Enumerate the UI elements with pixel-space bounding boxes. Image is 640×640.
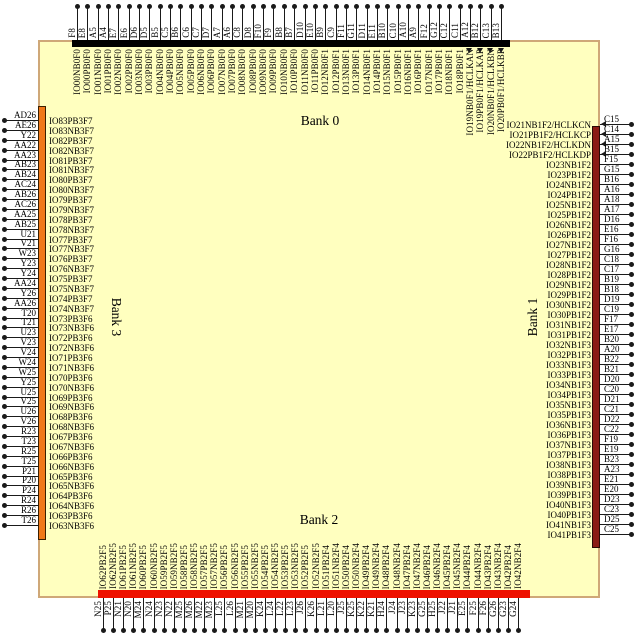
- pin-name: P24: [4, 485, 36, 495]
- pin-io-label: IO39PB1F3: [547, 490, 591, 500]
- pin-io-label: IO61NB2F5: [128, 543, 138, 589]
- pin-io-label: IO81PB3F7: [49, 156, 93, 166]
- pin-dot: [233, 628, 238, 633]
- pin-name: K24: [255, 601, 265, 617]
- pin-io-label: IO35PB1F3: [547, 410, 591, 420]
- pin-dot: [209, 4, 214, 9]
- pin-dot: [445, 628, 450, 633]
- pin-dot: [222, 628, 227, 633]
- pin-io-label: IO26PB1F2: [547, 230, 591, 240]
- pin-dot: [384, 628, 389, 633]
- pin-name: AA22: [4, 140, 36, 150]
- pin-name: F19: [604, 434, 636, 444]
- pin-dot: [427, 4, 432, 9]
- pin-name: M23: [204, 601, 214, 618]
- pin-io-label: IO34NB1F3: [546, 380, 591, 390]
- pin-io-label: IO34PB1F3: [547, 390, 591, 400]
- pin-dot: [489, 4, 494, 9]
- pin-io-label: IO23PB1F2: [547, 170, 591, 180]
- pin-name: G15: [604, 164, 636, 174]
- pin-io-label: IO38NB1F3: [546, 460, 591, 470]
- pin-name: T25: [4, 456, 36, 466]
- pin-name: A4: [98, 27, 108, 38]
- bank2-bottom-bar: [98, 590, 530, 598]
- pin-name: D16: [604, 214, 636, 224]
- pin-io-label: IO00NB0F0: [72, 49, 82, 95]
- pin-name: B16: [604, 174, 636, 184]
- pin-name: B9: [315, 27, 325, 38]
- pin-dot: [476, 628, 481, 633]
- pin-io-label: IO50NB2F4: [351, 543, 361, 589]
- pin-io-label: IO69PB3F6: [49, 393, 93, 403]
- pin-name: C20: [604, 384, 636, 394]
- pin-name: B18: [604, 284, 636, 294]
- pin-io-label: IO07PB0F0: [227, 49, 237, 93]
- pin-name: C17: [604, 264, 636, 274]
- pin-dot: [111, 628, 116, 633]
- pin-io-label: IO57PB2F5: [199, 545, 209, 589]
- pin-name: J22: [437, 601, 447, 614]
- pin-name: E17: [604, 324, 636, 334]
- pin-name: T26: [4, 515, 36, 525]
- pin-dot: [137, 4, 142, 9]
- pin-name: Y25: [4, 377, 36, 387]
- pin-name: K25: [346, 601, 356, 617]
- pin-io-label: IO80PB3F7: [49, 175, 93, 185]
- pin-name: K21: [366, 601, 376, 617]
- pin-io-label: IO39NB1F3: [546, 480, 591, 490]
- pin-name: D23: [604, 494, 636, 504]
- pin-name: B20: [604, 334, 636, 344]
- pin-io-label: IO29PB1F2: [547, 290, 591, 300]
- pin-name: B22: [604, 354, 636, 364]
- pin-io-label: IO81NB3F7: [49, 165, 94, 175]
- pin-io-label: IO83PB3F7: [49, 116, 93, 126]
- pin-name: F8: [67, 28, 77, 38]
- pin-name: U25: [4, 387, 36, 397]
- pin-name: J25: [336, 601, 346, 614]
- clock-arrow-icon: [487, 48, 493, 53]
- pin-io-label: IO32PB1F3: [547, 350, 591, 360]
- pin-name: U26: [4, 406, 36, 416]
- pin-name: F25: [468, 601, 478, 615]
- pin-name: A6: [222, 27, 232, 38]
- pin-io-label: IO12PB0F1: [331, 49, 341, 93]
- pin-name: R26: [4, 505, 36, 515]
- pin-name: AB24: [4, 169, 36, 179]
- pin-name: B7: [284, 27, 294, 38]
- pin-io-label: IO78PB3F7: [49, 215, 93, 225]
- pin-dot: [334, 628, 339, 633]
- pin-name: N25: [93, 601, 103, 617]
- pin-dot: [313, 4, 318, 9]
- pin-io-label: IO11NB0F0: [300, 49, 310, 95]
- pin-io-label: IO29NB1F2: [546, 280, 591, 290]
- pin-io-label: IO27PB1F2: [547, 250, 591, 260]
- pin-name: L26: [225, 601, 235, 616]
- pin-name: F10: [253, 24, 263, 38]
- pin-name: C19: [604, 304, 636, 314]
- pin-name: D19: [604, 294, 636, 304]
- pin-io-label: IO57NB2F5: [209, 543, 219, 589]
- pin-dot: [263, 628, 268, 633]
- pin-io-label: IO55NB2F5: [250, 543, 260, 589]
- pin-io-label: IO21NB1F2/HCLKCN: [506, 120, 591, 130]
- pin-io-label: IO08PB0F0: [248, 49, 258, 93]
- pin-io-label: IO08NB0F0: [237, 49, 247, 95]
- pin-io-label: IO64NB3F6: [49, 501, 94, 511]
- pin-dot: [292, 4, 297, 9]
- pin-io-label: IO44NB2F4: [473, 543, 483, 589]
- pin-io-label: IO18PB0F1: [455, 49, 465, 93]
- pin-name: E25: [457, 601, 467, 616]
- pin-io-label: IO45NB2F4: [452, 543, 462, 589]
- pin-dot: [75, 4, 80, 9]
- pin-name: G24: [508, 601, 518, 617]
- pin-io-label: IO24PB1F2: [547, 190, 591, 200]
- pin-io-label: IO21PB1F2/HCLKCP: [509, 130, 591, 140]
- clock-arrow-icon: [477, 48, 483, 53]
- pin-io-label: IO49PB2F4: [361, 545, 371, 589]
- pin-io-label: IO42NB2F4: [513, 543, 523, 589]
- pin-name: J26: [295, 601, 305, 614]
- pin-name: E6: [119, 28, 129, 38]
- pin-io-label: IO16PB0F1: [413, 49, 423, 93]
- pin-io-label: IO30PB1F2: [547, 310, 591, 320]
- pin-dot: [455, 628, 460, 633]
- pin-io-label: IO72PB3F6: [49, 333, 93, 343]
- pin-io-label: IO79NB3F7: [49, 205, 94, 215]
- pin-name: E16: [604, 224, 636, 234]
- pin-dot: [324, 628, 329, 633]
- pin-dot: [172, 628, 177, 633]
- pin-io-label: IO58NB2F5: [189, 543, 199, 589]
- pin-name: AC24: [4, 179, 36, 189]
- pin-io-label: IO17PB0F1: [434, 49, 444, 93]
- pin-name: T21: [4, 317, 36, 327]
- pin-dot: [96, 4, 101, 9]
- pin-io-label: IO45PB2F4: [442, 545, 452, 589]
- pin-dot: [158, 4, 163, 9]
- pin-dot: [334, 4, 339, 9]
- pin-io-label: IO50PB2F4: [341, 545, 351, 589]
- pin-io-label: IO80NB3F7: [49, 185, 94, 195]
- pin-dot: [121, 628, 126, 633]
- pin-io-label: IO56NB2F5: [230, 543, 240, 589]
- pin-io-label: IO61PB2F5: [118, 545, 128, 589]
- pin-name: B21: [604, 364, 636, 374]
- pin-name: AB25: [4, 219, 36, 229]
- pin-dot: [283, 628, 288, 633]
- pin-name: L25: [214, 601, 224, 616]
- pin-wire: [501, 7, 502, 40]
- pin-io-label: IO68PB3F6: [49, 412, 93, 422]
- pin-io-label: IO33PB1F3: [547, 370, 591, 380]
- pin-name: B23: [604, 454, 636, 464]
- pin-io-label: IO11PB0F0: [310, 49, 320, 93]
- pin-io-label: IO48PB2F4: [381, 545, 391, 589]
- pin-dot: [344, 4, 349, 9]
- pin-dot: [192, 628, 197, 633]
- pin-io-label: IO83NB3F7: [49, 126, 94, 136]
- pin-io-label: IO44PB2F4: [462, 545, 472, 589]
- pin-name: C15: [604, 114, 636, 124]
- pin-io-label: IO22PB1F2/HCLKDP: [509, 150, 591, 160]
- pin-io-label: IO79PB3F7: [49, 195, 93, 205]
- pin-io-label: IO27NB1F2: [546, 240, 591, 250]
- pin-io-label: IO54PB2F5: [260, 545, 270, 589]
- pin-io-label: IO41PB1F3: [547, 530, 591, 540]
- pin-io-label: IO62NB2F5: [108, 543, 118, 589]
- pin-dot: [182, 628, 187, 633]
- pin-io-label: IO32NB1F3: [546, 340, 591, 350]
- pin-wire: [5, 525, 38, 526]
- pin-io-label: IO66NB3F6: [49, 462, 94, 472]
- pin-io-label: IO18NB0F1: [444, 49, 454, 95]
- pin-io-label: IO12NB0F1: [320, 49, 330, 95]
- pin-name: L24: [265, 601, 275, 616]
- pin-io-label: IO09PB0F0: [268, 49, 278, 93]
- pin-name: D21: [604, 394, 636, 404]
- pin-name: F15: [604, 154, 636, 164]
- pin-name: L20: [326, 601, 336, 616]
- pin-io-label: IO72NB3F6: [49, 343, 94, 353]
- pin-name: B5: [150, 27, 160, 38]
- pin-io-label: IO04PB0F0: [165, 49, 175, 93]
- pin-io-label: IO10NB0F0: [279, 49, 289, 95]
- pin-dot: [458, 4, 463, 9]
- pin-name: D7: [201, 27, 211, 38]
- pin-name: N22: [164, 601, 174, 617]
- pin-name: V26: [4, 416, 36, 426]
- pin-name: D11: [357, 23, 367, 38]
- bank0-label: Bank 0: [301, 113, 340, 129]
- pin-name: B13: [491, 23, 501, 38]
- pin-name: B8: [274, 27, 284, 38]
- pin-dot: [85, 4, 90, 9]
- pin-dot: [405, 628, 410, 633]
- pin-io-label: IO68NB3F6: [49, 422, 94, 432]
- pin-name: N23: [154, 601, 164, 617]
- pin-name: F16: [604, 234, 636, 244]
- pin-name: D10: [295, 22, 305, 38]
- pin-name: J24: [387, 601, 397, 614]
- pin-name: E11: [367, 24, 377, 38]
- pin-io-label: IO43PB2F4: [483, 545, 493, 589]
- pin-io-label: IO67PB3F6: [49, 432, 93, 442]
- bank0-top-bar: [72, 40, 510, 47]
- pin-name: U21: [4, 229, 36, 239]
- pin-io-label: IO13PB0F1: [351, 49, 361, 93]
- pin-io-label: IO74PB3F7: [49, 294, 93, 304]
- pin-dot: [374, 628, 379, 633]
- pin-io-label: IO23NB1F2: [546, 160, 591, 170]
- pin-dot: [415, 628, 420, 633]
- pin-io-label: IO17NB0F1: [424, 49, 434, 95]
- pin-name: E19: [604, 444, 636, 454]
- pin-dot: [101, 628, 106, 633]
- pin-name: C6: [181, 27, 191, 38]
- pin-dot: [162, 628, 167, 633]
- pin-io-label: IO49NB2F4: [371, 543, 381, 589]
- pin-name: C23: [604, 504, 636, 514]
- pin-io-label: IO70NB3F6: [49, 383, 94, 393]
- pin-io-label: IO43NB2F4: [493, 543, 503, 589]
- pin-wire: [600, 534, 631, 535]
- pin-io-label: IO04NB0F0: [155, 49, 165, 95]
- pin-io-label: IO47NB2F4: [412, 543, 422, 589]
- pin-io-label: IO59PB2F5: [159, 545, 169, 589]
- pin-io-label: IO75PB3F7: [49, 274, 93, 284]
- pin-io-label: IO67NB3F6: [49, 442, 94, 452]
- pin-name: B15: [604, 144, 636, 154]
- pin-name: T23: [4, 436, 36, 446]
- pin-name: K23: [407, 601, 417, 617]
- pin-io-label: IO07NB0F0: [217, 49, 227, 95]
- pin-io-label: IO51NB2F4: [331, 543, 341, 589]
- pin-name: Y22: [4, 130, 36, 140]
- pin-name: AA24: [4, 278, 36, 288]
- pin-dot: [323, 4, 328, 9]
- pin-io-label: IO16NB0F1: [403, 49, 413, 95]
- pin-io-label: IO60PB2F5: [138, 545, 148, 589]
- pin-io-label: IO30NB1F2: [546, 300, 591, 310]
- pin-dot: [344, 628, 349, 633]
- bank1-label: Bank 1: [525, 298, 541, 337]
- pin-name: P25: [103, 601, 113, 615]
- pin-io-label: IO37NB1F3: [546, 440, 591, 450]
- pin-dot: [447, 4, 452, 9]
- pin-name: M26: [184, 601, 194, 618]
- pin-name: AB26: [4, 189, 36, 199]
- pin-name: J23: [397, 601, 407, 614]
- pin-dot: [251, 4, 256, 9]
- pin-io-label: IO58PB2F5: [179, 545, 189, 589]
- pin-name: A12: [460, 22, 470, 38]
- pin-io-label: IO35NB1F3: [546, 400, 591, 410]
- bank3-label: Bank 3: [108, 298, 124, 337]
- pin-wire: [518, 598, 519, 629]
- pin-io-label: IO78NB3F7: [49, 225, 94, 235]
- pin-name: E7: [108, 28, 118, 38]
- pin-dot: [152, 628, 157, 633]
- pin-io-label: IO20PB0F1/HCLKBP: [496, 49, 506, 132]
- pin-name: G25: [417, 601, 427, 617]
- pin-io-label: IO53NB2F5: [290, 543, 300, 589]
- pin-dot: [314, 628, 319, 633]
- pin-name: N24: [144, 601, 154, 617]
- pin-io-label: IO76PB3F7: [49, 254, 93, 264]
- pin-name: L23: [285, 601, 295, 616]
- pin-io-label: IO82NB3F7: [49, 146, 94, 156]
- pin-name: D5: [139, 27, 149, 38]
- pin-name: W25: [4, 367, 36, 377]
- pin-name: G23: [498, 601, 508, 617]
- pin-name: W24: [4, 357, 36, 367]
- bank3-left-bar: [38, 106, 46, 540]
- pin-name: C8: [232, 27, 242, 38]
- pin-io-label: IO75NB3F7: [49, 284, 94, 294]
- pin-io-label: IO02NB0F0: [113, 49, 123, 95]
- pin-name: AB23: [4, 159, 36, 169]
- pin-io-label: IO63NB3F6: [49, 521, 94, 531]
- pin-name: M24: [133, 601, 143, 618]
- pin-name: K26: [306, 601, 316, 617]
- pin-name: E21: [604, 474, 636, 484]
- pin-io-label: IO00PB0F0: [82, 49, 92, 93]
- pin-name: A9: [408, 27, 418, 38]
- pin-dot: [168, 4, 173, 9]
- pin-io-label: IO31NB1F2: [546, 320, 591, 330]
- pin-io-label: IO20NB0F1/HCLKBN: [486, 49, 496, 135]
- pin-name: V24: [4, 347, 36, 357]
- pin-io-label: IO73PB3F6: [49, 314, 93, 324]
- pin-name: D8: [243, 27, 253, 38]
- pin-name: A16: [604, 184, 636, 194]
- pin-name: C7: [191, 27, 201, 38]
- pin-name: F17: [604, 314, 636, 324]
- pin-name: B10: [377, 23, 387, 38]
- pin-dot: [271, 4, 276, 9]
- pin-io-label: IO14NB0F1: [362, 49, 372, 95]
- pin-name: P21: [4, 466, 36, 476]
- pin-io-label: IO53PB2F5: [280, 545, 290, 589]
- pin-name: N20: [123, 601, 133, 617]
- pin-dot: [220, 4, 225, 9]
- pin-name: A18: [604, 194, 636, 204]
- pin-io-label: IO65PB3F6: [49, 472, 93, 482]
- pin-dot: [116, 4, 121, 9]
- pin-io-label: IO52NB2F5: [311, 543, 321, 589]
- pin-dot: [506, 628, 511, 633]
- bank1-right-bar: [592, 126, 600, 548]
- pin-dot: [375, 4, 380, 9]
- pin-name: AC26: [4, 199, 36, 209]
- pin-dot: [365, 4, 370, 9]
- pin-name: AA26: [4, 298, 36, 308]
- pin-name: F9: [263, 28, 273, 38]
- pin-io-label: IO09NB0F0: [258, 49, 268, 95]
- pin-name: F12: [419, 24, 429, 38]
- pin-io-label: IO06NB0F0: [196, 49, 206, 95]
- pin-io-label: IO25PB1F2: [547, 210, 591, 220]
- pin-name: E8: [77, 28, 87, 38]
- pin-dot: [106, 4, 111, 9]
- pin-io-label: IO48NB2F4: [392, 543, 402, 589]
- pin-name: A17: [604, 204, 636, 214]
- pin-io-label: IO52PB2F5: [300, 545, 310, 589]
- pin-name: AA23: [4, 150, 36, 160]
- pin-dot: [385, 4, 390, 9]
- pin-name: B19: [604, 274, 636, 284]
- pin-io-label: IO06PB0F0: [206, 49, 216, 93]
- pin-name: C9: [326, 27, 336, 38]
- pin-name: M25: [174, 601, 184, 618]
- pin-io-label: IO59NB2F5: [169, 543, 179, 589]
- pin-io-label: IO47PB2F4: [402, 545, 412, 589]
- pin-dot: [189, 4, 194, 9]
- pin-io-label: IO36NB1F3: [546, 420, 591, 430]
- pin-io-label: IO05NB0F0: [175, 49, 185, 95]
- pin-io-label: IO33NB1F3: [546, 360, 591, 370]
- pin-dot: [395, 628, 400, 633]
- pin-io-label: IO14PB0F1: [372, 49, 382, 93]
- pin-dot: [468, 4, 473, 9]
- pin-name: T20: [4, 308, 36, 318]
- pin-name: B6: [170, 27, 180, 38]
- pin-name: A23: [604, 464, 636, 474]
- pin-io-label: IO82PB3F7: [49, 136, 93, 146]
